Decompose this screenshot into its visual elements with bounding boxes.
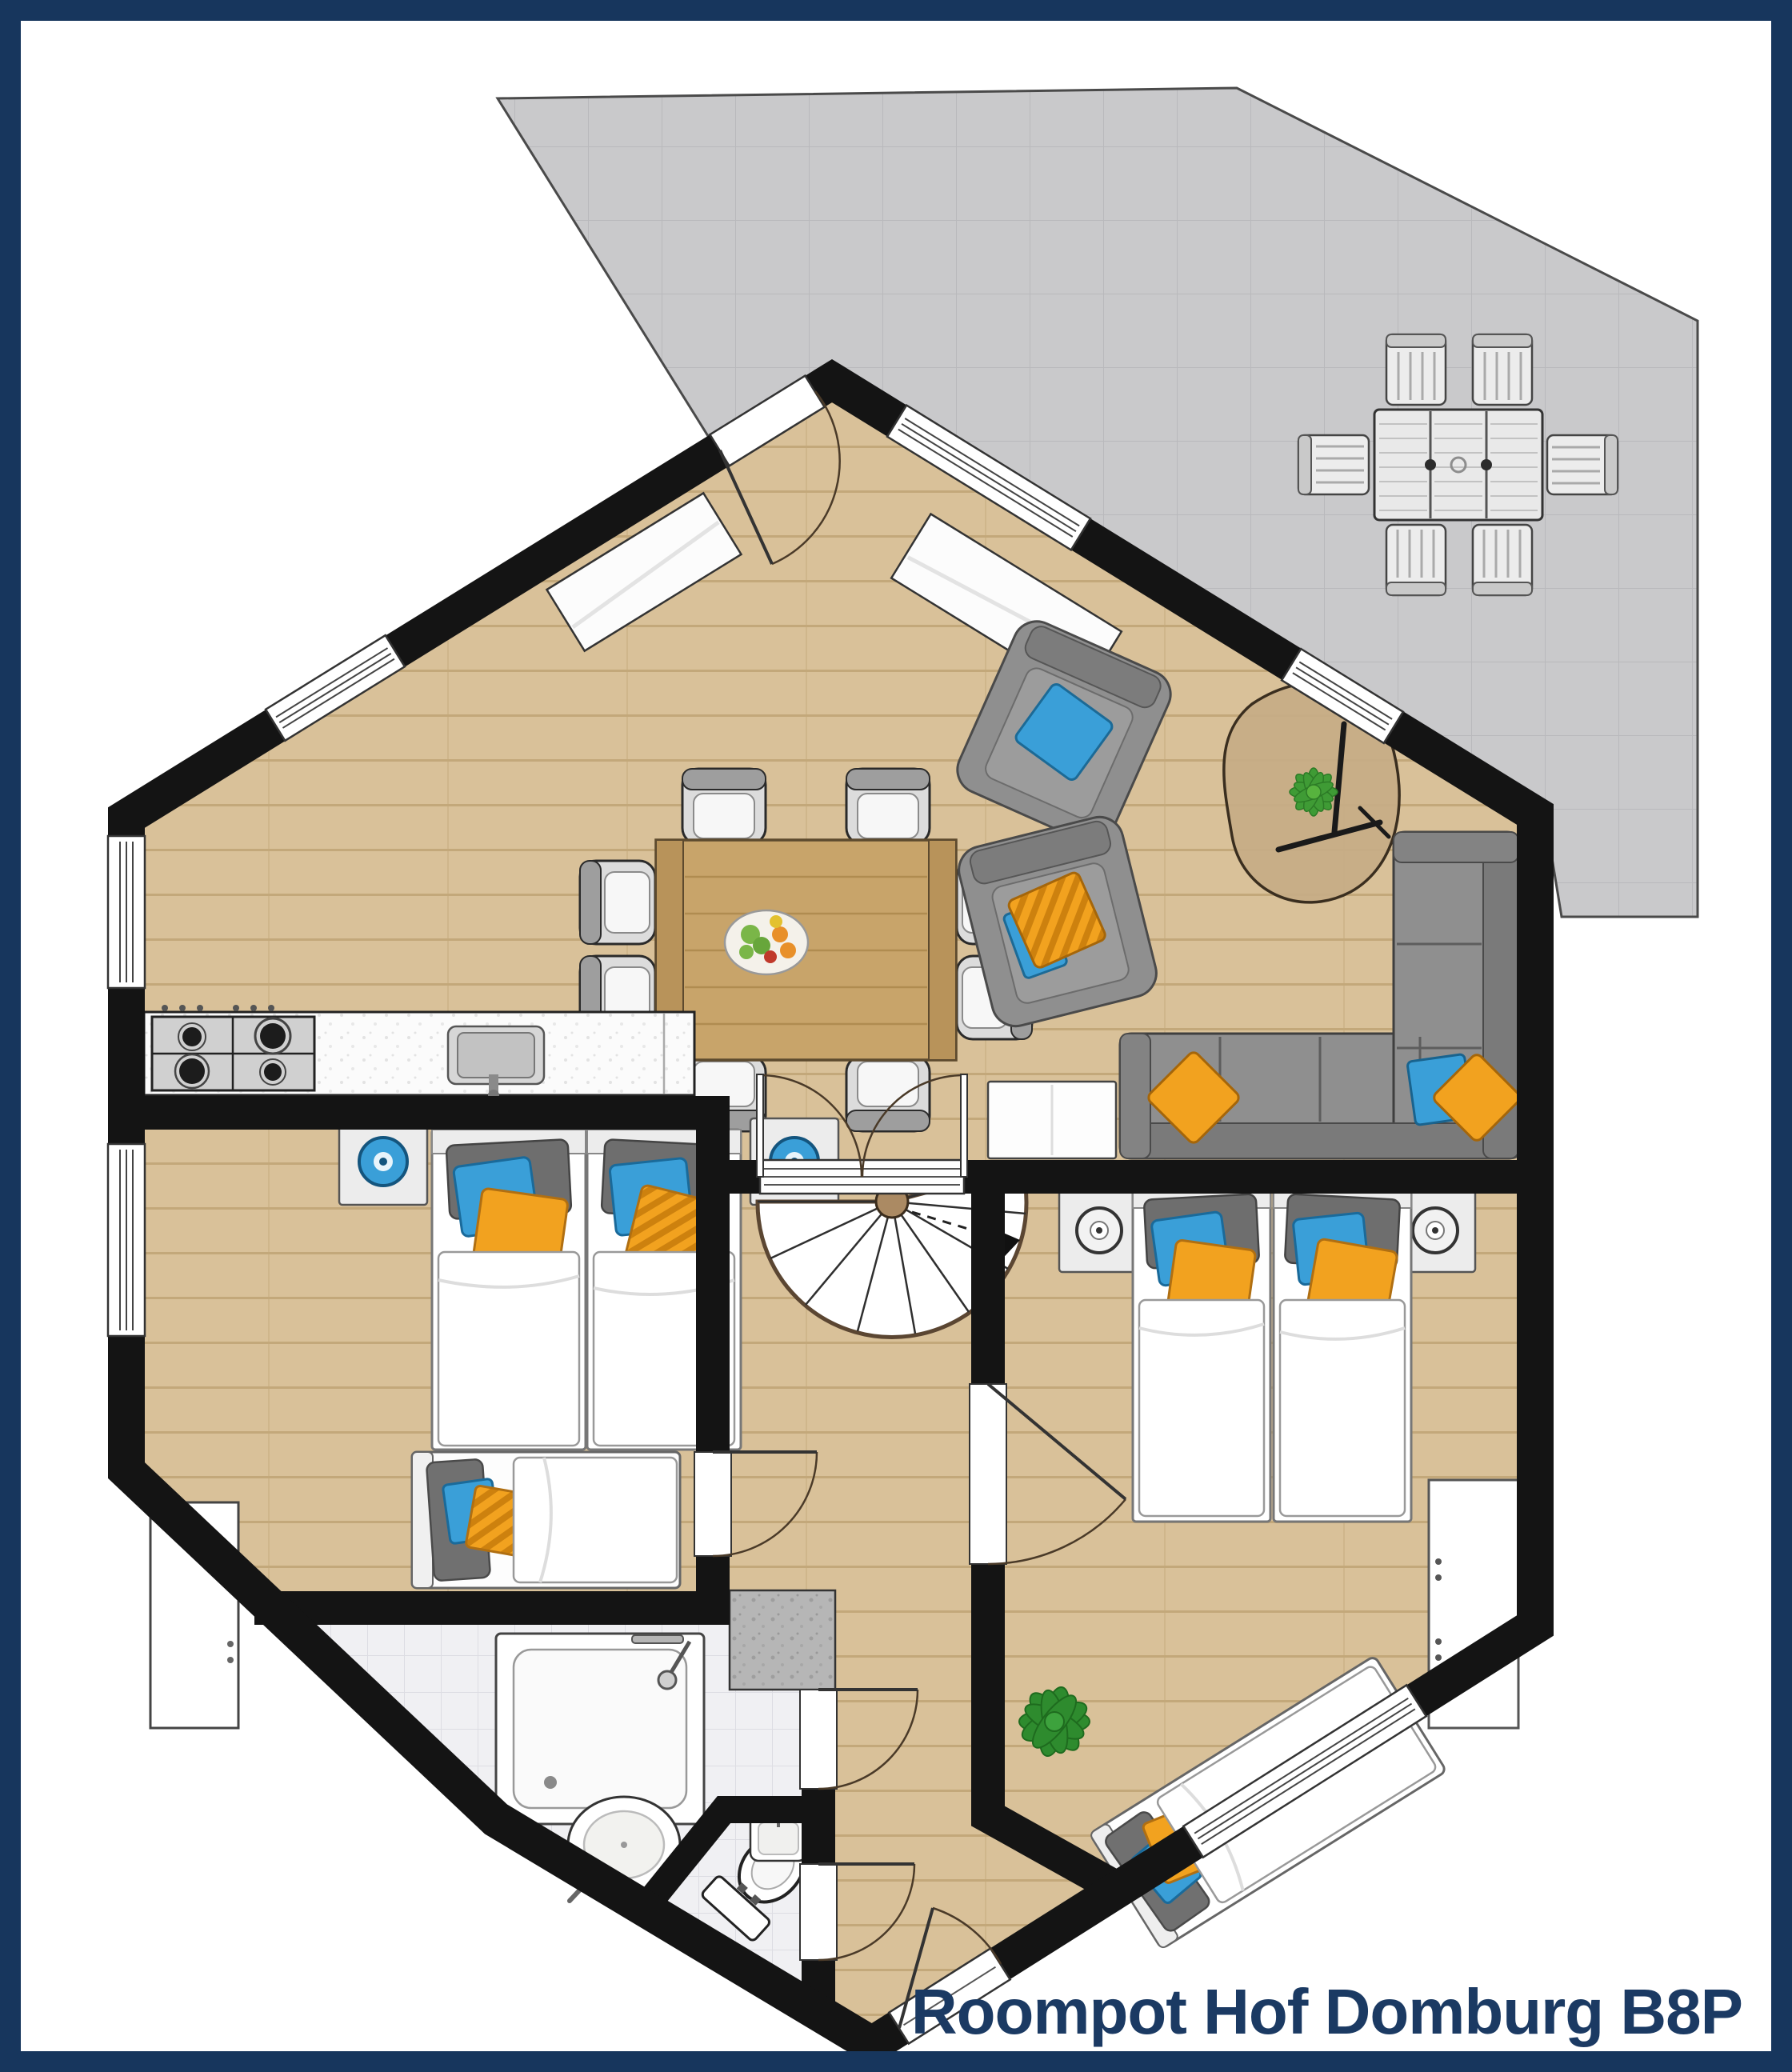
outdoor-chair xyxy=(1473,334,1532,405)
nightstand xyxy=(339,1118,427,1205)
outdoor-chair xyxy=(1547,435,1618,494)
nightstand xyxy=(1059,1189,1139,1272)
single-bed xyxy=(1133,1186,1270,1522)
dining-chair xyxy=(580,861,655,944)
outdoor-table xyxy=(1374,410,1542,520)
window xyxy=(108,836,145,988)
dining-chair xyxy=(682,769,766,844)
plan-title: Roompot Hof Domburg B8P xyxy=(911,1976,1742,2047)
single-bed xyxy=(1274,1186,1411,1522)
fruit-bowl xyxy=(725,910,808,974)
outdoor-chair xyxy=(1298,435,1369,494)
window xyxy=(108,1144,145,1336)
kitchen-counter xyxy=(144,1005,694,1101)
shower xyxy=(496,1634,704,1824)
single-bed xyxy=(432,1130,586,1450)
storage-closet xyxy=(730,1590,835,1690)
floor-plan-canvas: Roompot Hof Domburg B8P xyxy=(0,0,1792,2072)
outdoor-chair xyxy=(1386,525,1446,595)
outdoor-chair xyxy=(1386,334,1446,405)
outdoor-chair xyxy=(1473,525,1532,595)
stove xyxy=(152,1005,314,1090)
dining-chair xyxy=(846,1056,930,1131)
floor-plan-image: Roompot Hof Domburg B8P xyxy=(0,0,1792,2072)
plant-icon xyxy=(1290,768,1338,816)
dining-chair xyxy=(846,769,930,844)
tv-sideboard xyxy=(988,1082,1116,1158)
single-bed xyxy=(412,1452,680,1588)
